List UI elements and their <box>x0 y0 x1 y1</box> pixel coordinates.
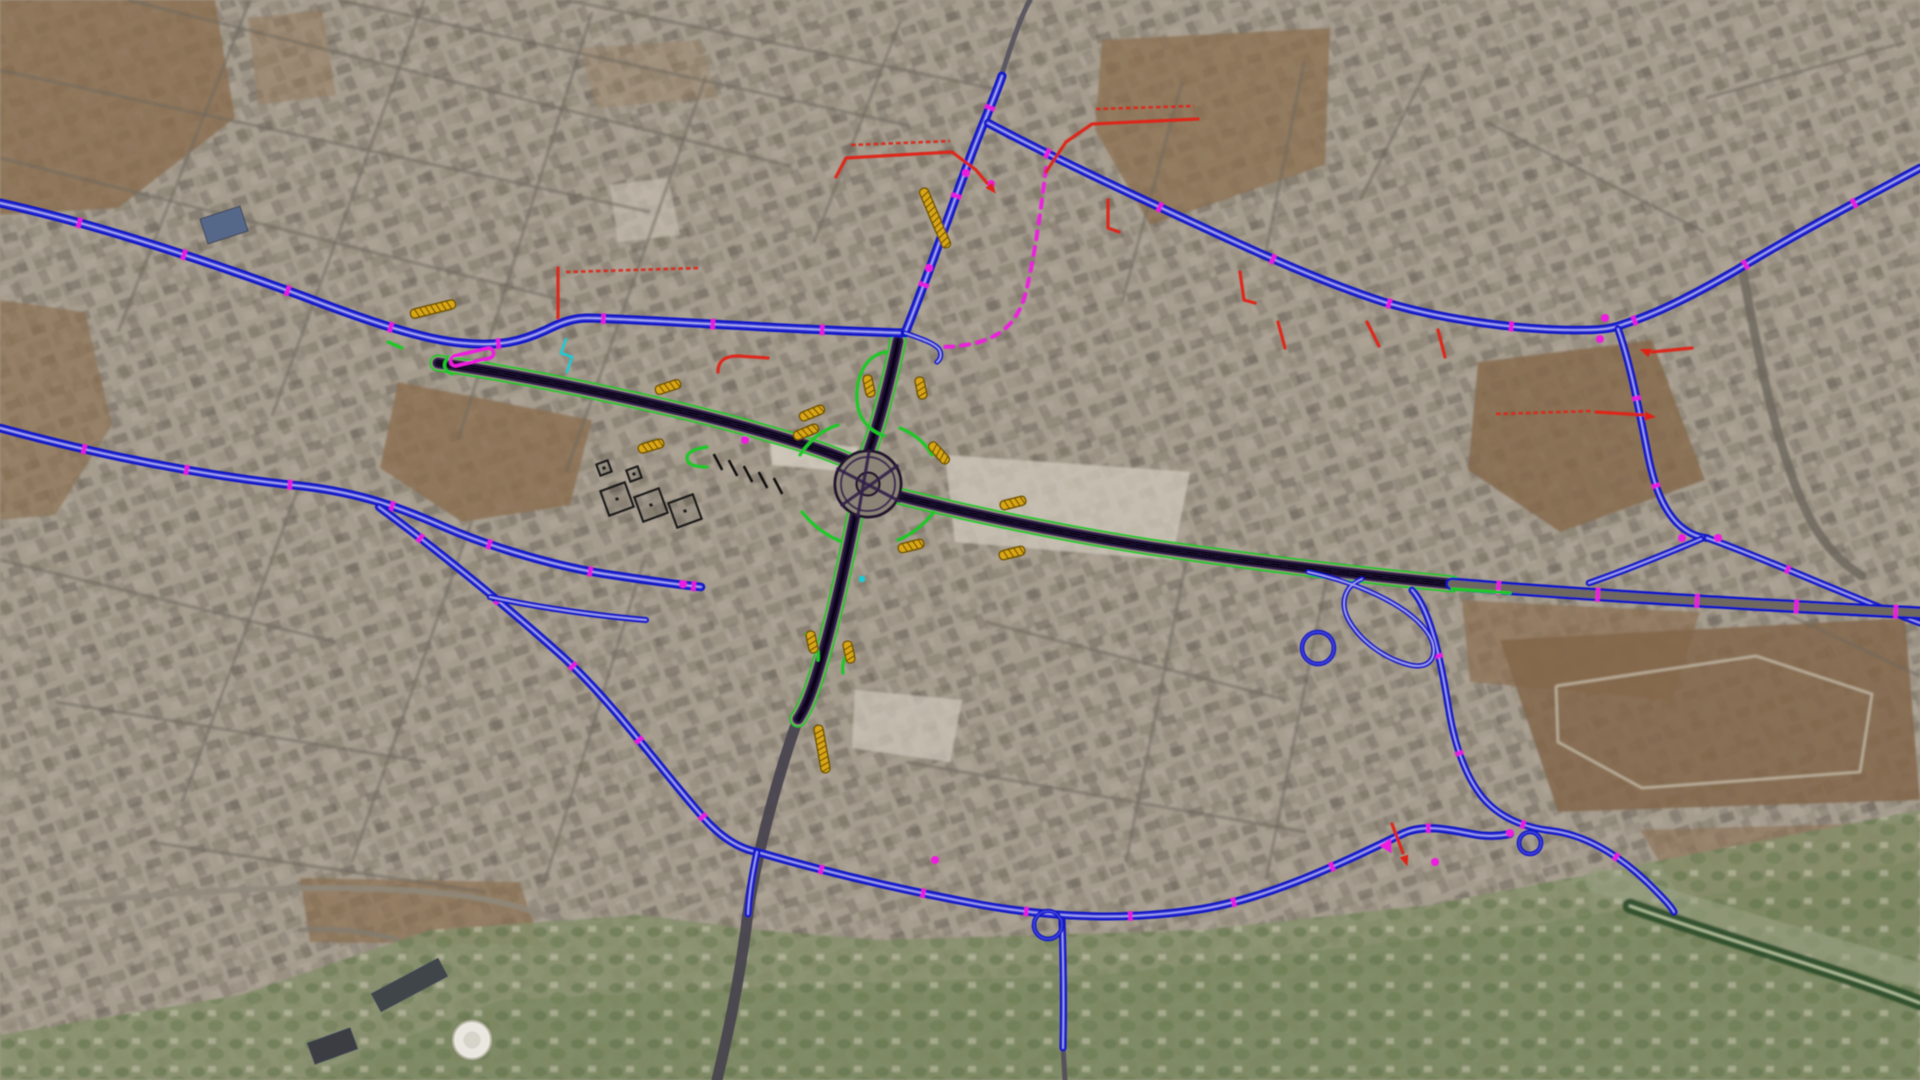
magenta-node <box>931 856 939 864</box>
magenta-node <box>1431 858 1439 866</box>
magenta-node <box>1714 534 1722 542</box>
magenta-node <box>962 169 970 177</box>
magenta-node <box>741 436 749 444</box>
layer-roundabout <box>834 450 902 518</box>
map-canvas <box>0 0 1920 1080</box>
circular-tank-center <box>463 1031 480 1048</box>
satellite-roadplan-map <box>0 0 1920 1080</box>
field-patch <box>248 10 336 105</box>
cyan-dot <box>859 576 865 582</box>
magenta-node <box>1506 829 1514 837</box>
magenta-node <box>679 580 687 588</box>
magenta-node <box>1596 335 1604 343</box>
magenta-node <box>925 264 933 272</box>
magenta-node <box>1678 534 1686 542</box>
layer-satellite <box>0 0 1920 1080</box>
magenta-node <box>1601 314 1609 322</box>
